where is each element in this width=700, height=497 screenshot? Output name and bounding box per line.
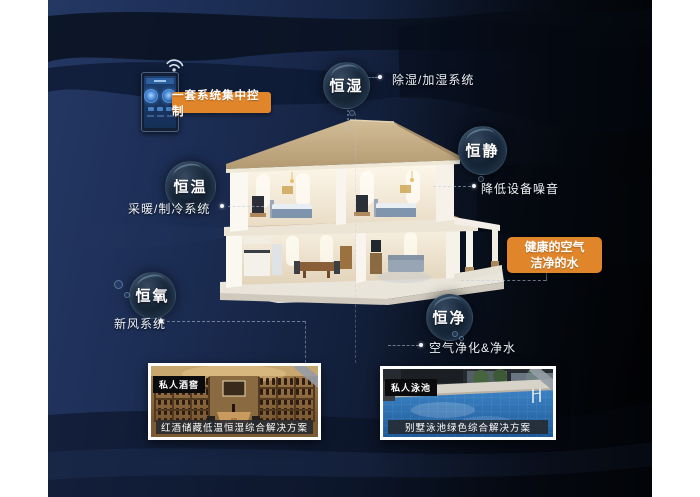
pool-tag: 私人泳池: [385, 379, 437, 396]
highlight-line1: 健康的空气: [524, 239, 584, 255]
connector-hengyang-down: [305, 321, 306, 363]
marker-dot: [378, 75, 382, 79]
panel-chip: [148, 107, 154, 111]
connector-highlight-stem: [546, 272, 547, 281]
marker-dot: [419, 343, 423, 347]
note-dehumidify: 除湿/加湿系统: [392, 71, 474, 88]
marker-dot: [472, 184, 476, 188]
decor-bubble: [478, 176, 484, 182]
healthy-air-water-label: 健康的空气 洁净的水: [507, 237, 602, 273]
bubble-constant-quiet: 恒静: [458, 126, 507, 175]
panel-chip: [157, 107, 163, 111]
note-fresh-air: 新风系统: [114, 315, 166, 332]
panel-header: [146, 78, 174, 84]
note-noise: 降低设备噪音: [481, 180, 559, 197]
marker-dot: [220, 204, 224, 208]
bubble-constant-oxygen: 恒氧: [129, 272, 176, 319]
connector-panel-to-cellar: [355, 113, 356, 363]
connector-hengyang: [167, 321, 305, 322]
wine-cellar-card: 私人酒窖 红酒储藏低温恒湿综合解决方案: [148, 363, 321, 440]
wine-cellar-caption: 红酒储藏低温恒湿综合解决方案: [156, 420, 313, 434]
connector-hengjing2: [388, 345, 419, 346]
decor-bubble: [349, 110, 355, 116]
central-control-label: 一套系统集中控制: [172, 92, 271, 113]
wine-cellar-tag: 私人酒窖: [153, 376, 205, 393]
pool-card: 私人泳池 别墅泳池绿色综合解决方案: [380, 366, 556, 440]
note-heating-cooling: 采暖/制冷系统: [128, 200, 210, 217]
decor-bubble: [114, 280, 123, 289]
bubble-constant-humidity: 恒湿: [323, 62, 370, 109]
connector-hengwen: [228, 206, 264, 207]
panel-knob: [144, 89, 158, 103]
decor-bubble: [124, 292, 130, 298]
highlight-line2: 洁净的水: [530, 255, 578, 271]
panel-bar: [157, 115, 164, 117]
connector-hengjing: [433, 186, 471, 187]
panel-bar: [147, 115, 154, 117]
connector-highlight: [461, 280, 546, 281]
connector-hengshi: [368, 77, 378, 78]
bubble-constant-clean: 恒净: [426, 294, 473, 341]
wifi-icon: [164, 54, 186, 74]
decor-bubble: [459, 336, 464, 341]
poster-canvas: 一套系统集中控制 健康的空气 洁净的水 恒湿 除湿/加湿系统 恒静 降低设备噪音…: [48, 0, 652, 497]
note-purification: 空气净化&净水: [429, 339, 516, 356]
marker-dot: [159, 319, 163, 323]
pool-caption: 别墅泳池绿色综合解决方案: [388, 420, 548, 434]
decor-bubble: [452, 331, 458, 337]
